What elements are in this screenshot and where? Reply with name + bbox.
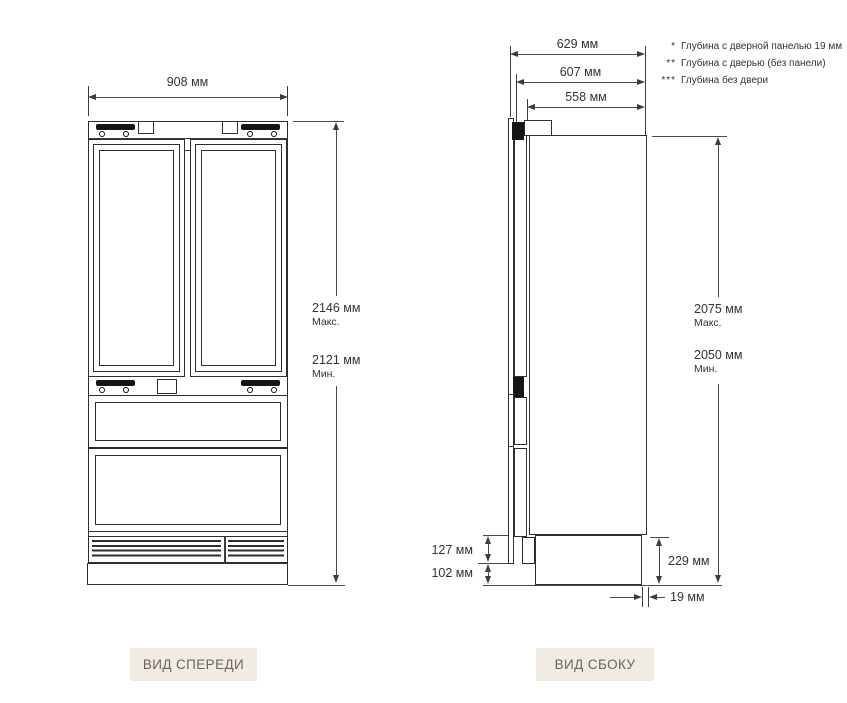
vent-grille-right-slats [228,540,284,559]
depth-panel-label: 629 мм [510,38,645,52]
dim102-label: 102 мм [420,567,473,581]
arrow-left-icon [516,79,524,85]
depth-body-dim-line [533,107,640,108]
front-lower-drawer [88,448,288,532]
front-right-door-panel [201,150,276,366]
side-height-min-note: Мин. [694,364,717,376]
dim127-tick-bottom [478,563,508,564]
side-view-caption-label: ВИД СБОКУ [555,657,636,672]
depth-panel-dim-line [516,54,640,55]
side-view-caption: ВИД СБОКУ [536,648,654,681]
top-right-hinge [237,124,283,137]
front-height-max-label: 2146 мм [312,302,360,316]
footnote-2-text: Глубина с дверью (без панели) [681,58,826,69]
front-height-max-note: Макс. [312,317,340,329]
vent-grille-left-slats [92,540,221,559]
arrow-right-icon [280,94,288,100]
dim229-label: 229 мм [668,555,710,569]
side-bottom-hinge-bracket [522,537,535,564]
depth-ext-back [645,46,646,135]
middle-left-hinge [93,380,139,393]
front-height-min-label: 2121 мм [312,354,360,368]
dim19-label: 19 мм [670,591,705,605]
depth-body-label: 558 мм [527,91,645,105]
arrow-down-icon [715,575,721,583]
side-panel-divider-2 [508,446,514,447]
front-left-door [88,139,185,377]
depth-door-label: 607 мм [516,66,645,80]
footnotes: * Глубина с дверной панелью 19 мм ** Глу… [656,41,842,92]
arrow-down-icon [485,554,491,562]
asterisk-icon: ** [656,58,676,69]
arrow-right-icon [634,594,642,600]
dimension-drawing: 908 мм [0,0,847,703]
front-width-label: 908 мм [88,76,287,90]
arrow-right-icon [637,51,645,57]
middle-rail-latch [157,379,177,394]
dim127-label: 127 мм [420,544,473,558]
vent-grille-divider [224,536,226,563]
door-gap-bridge [184,150,190,151]
asterisk-icon: * [656,41,676,52]
arrow-down-icon [333,575,339,583]
arrow-right-icon [637,104,645,110]
side-height-min-label: 2050 мм [694,349,742,363]
arrow-down-icon [656,576,662,584]
top-left-hinge [93,124,139,137]
side-lower-drawer-front [514,448,527,537]
side-cabinet-body [529,135,647,535]
top-rail-notch-right [222,121,238,134]
side-height-max-note: Макс. [694,318,722,330]
dim19-lead-left [610,597,636,598]
depth-door-dim-line [522,82,640,83]
side-door-upper [514,126,527,377]
arrow-left-icon [88,94,96,100]
front-width-extension-right [287,86,288,116]
front-lower-drawer-panel [95,455,281,525]
front-view-caption-label: ВИД СПЕРЕДИ [143,657,244,672]
top-rail-notch-left [138,121,154,134]
footnote-2: ** Глубина с дверью (без панели) [656,58,842,75]
arrow-left-icon [510,51,518,57]
arrow-down-icon [485,576,491,584]
side-base-unit [535,535,642,585]
front-upper-drawer-panel [95,402,281,441]
asterisk-icon: *** [656,75,676,86]
footnote-1-text: Глубина с дверной панелью 19 мм [681,41,842,52]
dim19-lead-right [655,597,665,598]
dim229-line [659,544,660,578]
front-right-door [190,139,287,377]
side-middle-hinge [513,377,524,397]
side-height-dim-line-upper [718,144,719,297]
dim19-witness-left [642,587,643,607]
side-top-hinge [512,122,524,140]
front-left-door-panel [99,150,174,366]
side-height-dim-line-lower [718,384,719,576]
front-width-dim-line [94,97,282,98]
middle-right-hinge [237,380,283,393]
arrow-left-icon [527,104,535,110]
front-width-extension-left [88,86,89,116]
side-floor-line [483,585,722,586]
front-floor-line [288,585,345,586]
side-upper-drawer-front [514,397,527,445]
footnote-1: * Глубина с дверной панелью 19 мм [656,41,842,58]
front-height-dim-line-lower [336,386,337,576]
front-upper-drawer [88,395,288,448]
footnote-3-text: Глубина без двери [681,75,768,86]
front-height-min-note: Мин. [312,369,335,381]
front-plinth [87,563,288,585]
front-height-dim-line-upper [336,129,337,296]
arrow-right-icon [637,79,645,85]
footnote-3: *** Глубина без двери [656,75,842,92]
front-view-caption: ВИД СПЕРЕДИ [130,648,257,681]
side-top-hinge-cover [524,120,552,136]
side-height-max-label: 2075 мм [694,303,742,317]
